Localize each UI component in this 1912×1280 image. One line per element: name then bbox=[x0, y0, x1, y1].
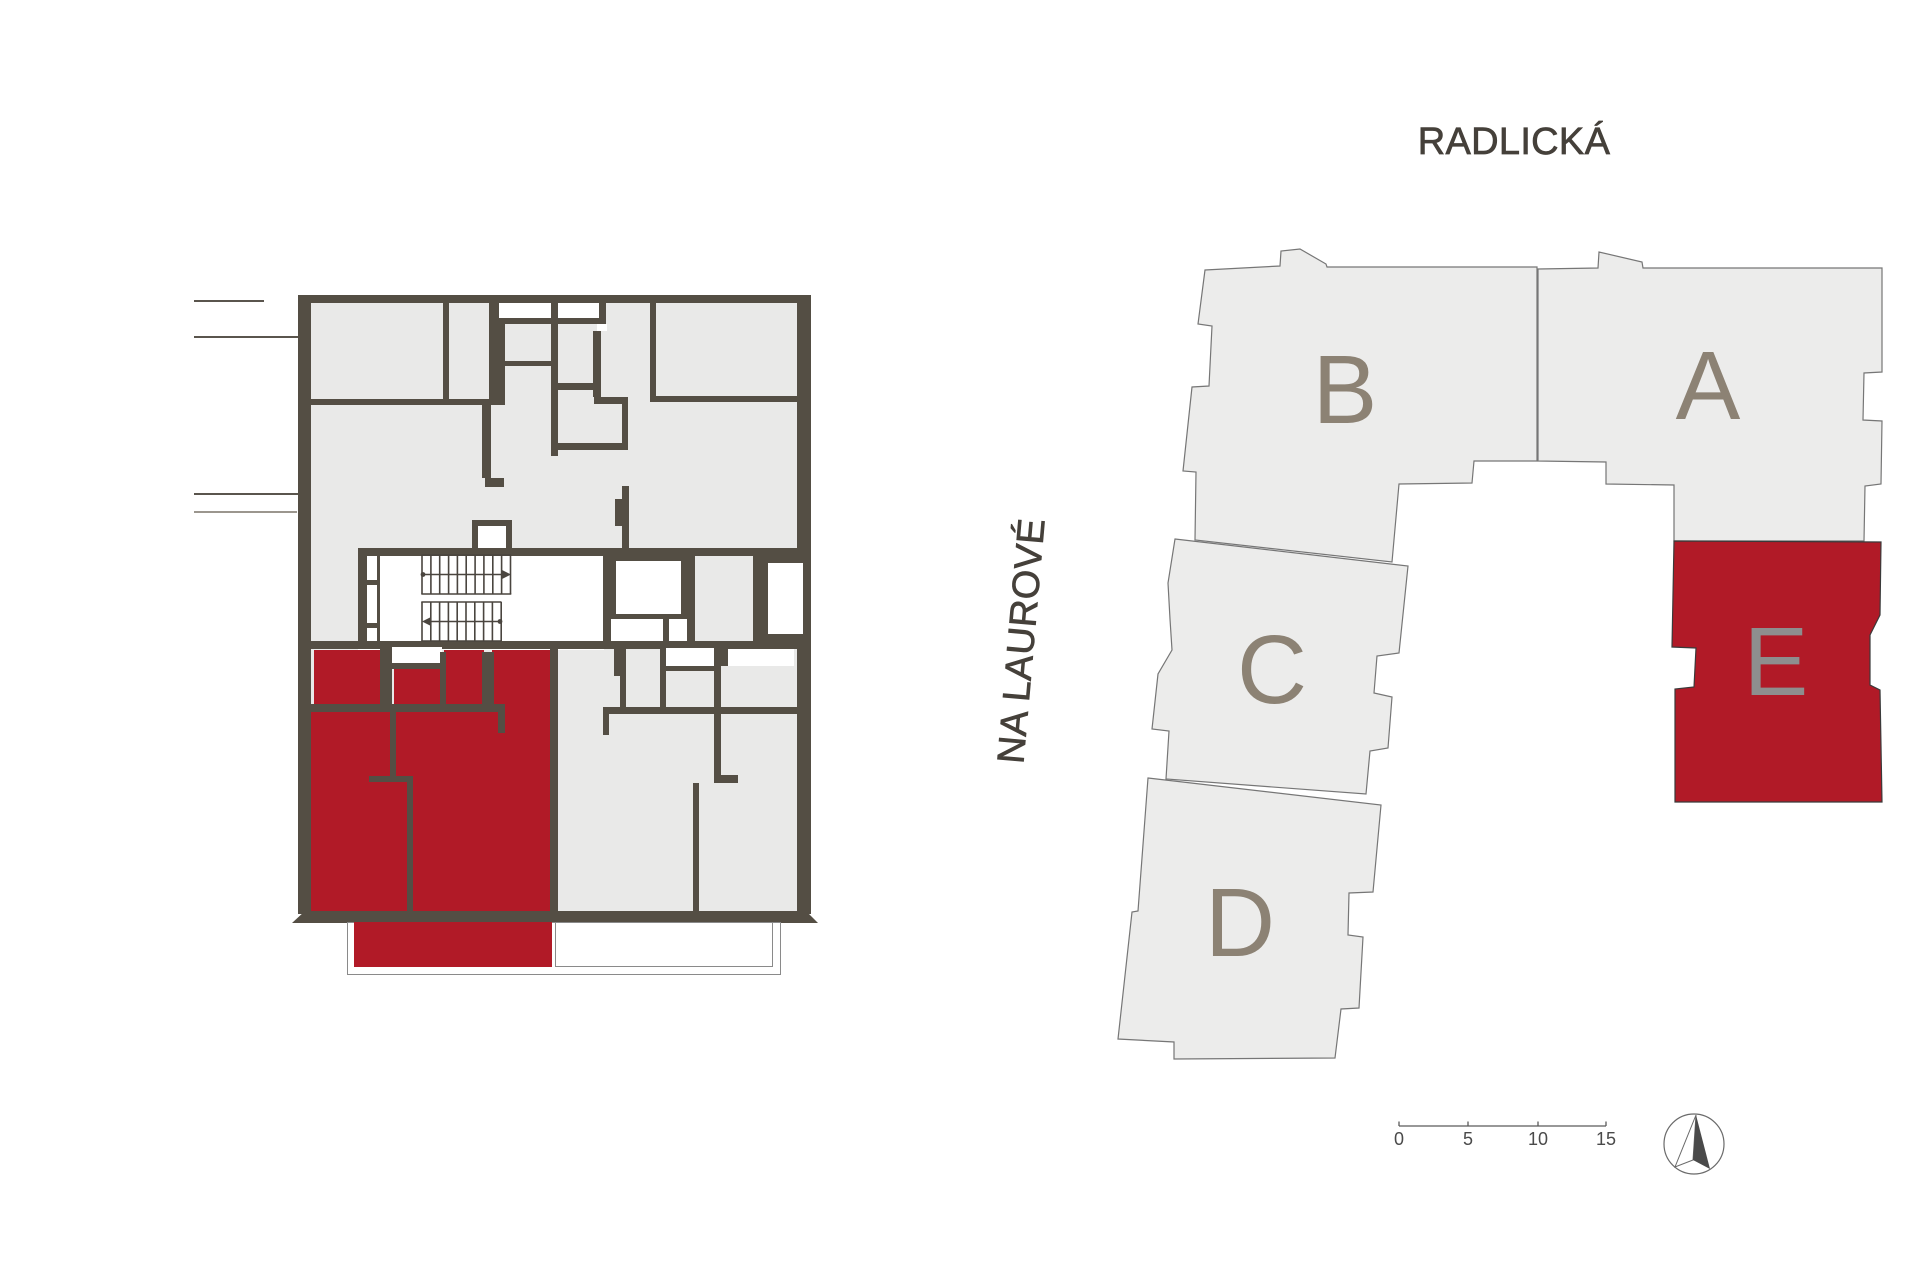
svg-text:A: A bbox=[1676, 331, 1741, 440]
svg-text:10: 10 bbox=[1528, 1129, 1548, 1149]
svg-text:C: C bbox=[1237, 615, 1307, 724]
svg-text:RADLICKÁ: RADLICKÁ bbox=[1418, 120, 1611, 163]
svg-text:E: E bbox=[1744, 607, 1809, 716]
svg-text:B: B bbox=[1313, 335, 1378, 444]
svg-text:5: 5 bbox=[1463, 1129, 1473, 1149]
svg-text:0: 0 bbox=[1394, 1129, 1404, 1149]
svg-text:D: D bbox=[1205, 868, 1275, 977]
svg-text:15: 15 bbox=[1596, 1129, 1616, 1149]
